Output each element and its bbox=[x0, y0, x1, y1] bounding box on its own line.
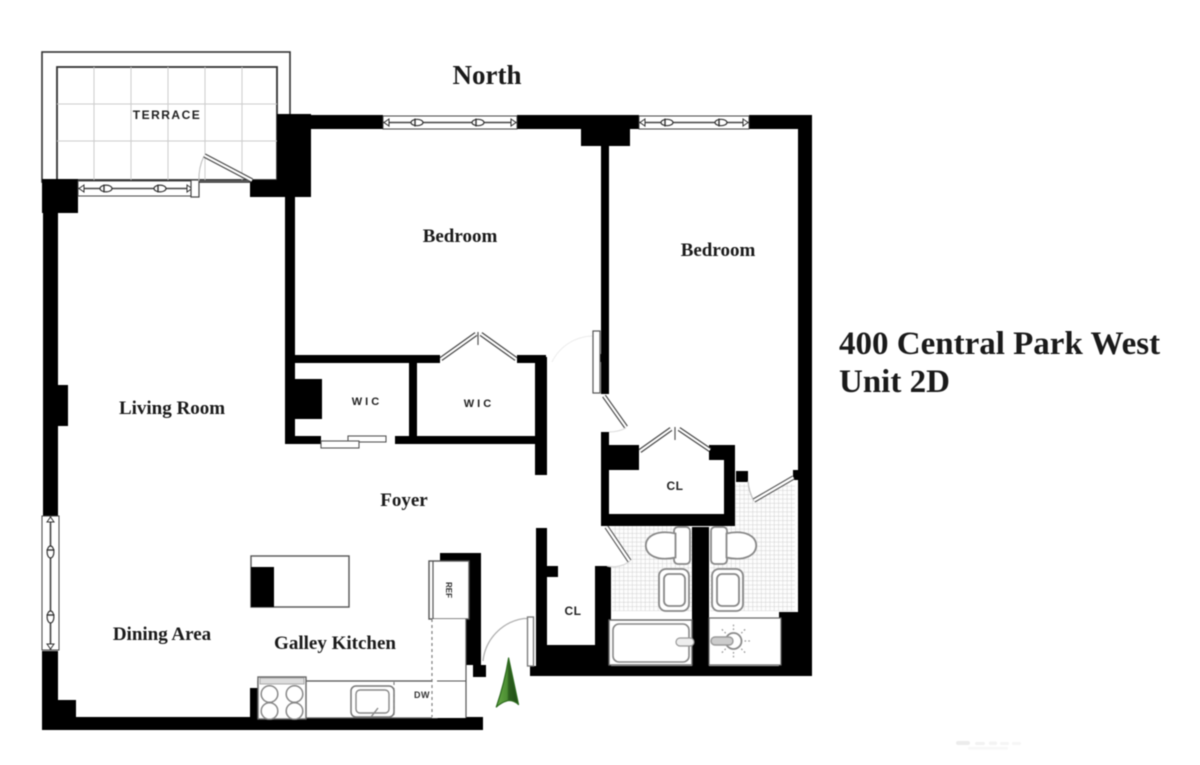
svg-text:Living Room: Living Room bbox=[119, 398, 225, 419]
svg-text:Bedroom: Bedroom bbox=[423, 226, 498, 247]
svg-text:Dining Area: Dining Area bbox=[113, 624, 212, 645]
svg-text:WIC: WIC bbox=[352, 396, 382, 408]
svg-text:400 Central Park West: 400 Central Park West bbox=[839, 326, 1160, 362]
svg-text:CL: CL bbox=[565, 604, 582, 618]
svg-text:North: North bbox=[453, 60, 522, 90]
svg-text:Galley Kitchen: Galley Kitchen bbox=[274, 633, 396, 654]
svg-text:Unit 2D: Unit 2D bbox=[839, 364, 950, 400]
svg-text:WIC: WIC bbox=[464, 398, 494, 410]
svg-text:TERRACE: TERRACE bbox=[133, 108, 202, 122]
svg-text:REF: REF bbox=[444, 582, 453, 598]
svg-text:Foyer: Foyer bbox=[380, 490, 428, 511]
svg-text:CL: CL bbox=[667, 479, 684, 493]
svg-text:DW: DW bbox=[414, 690, 430, 700]
svg-text:Bedroom: Bedroom bbox=[681, 240, 756, 261]
